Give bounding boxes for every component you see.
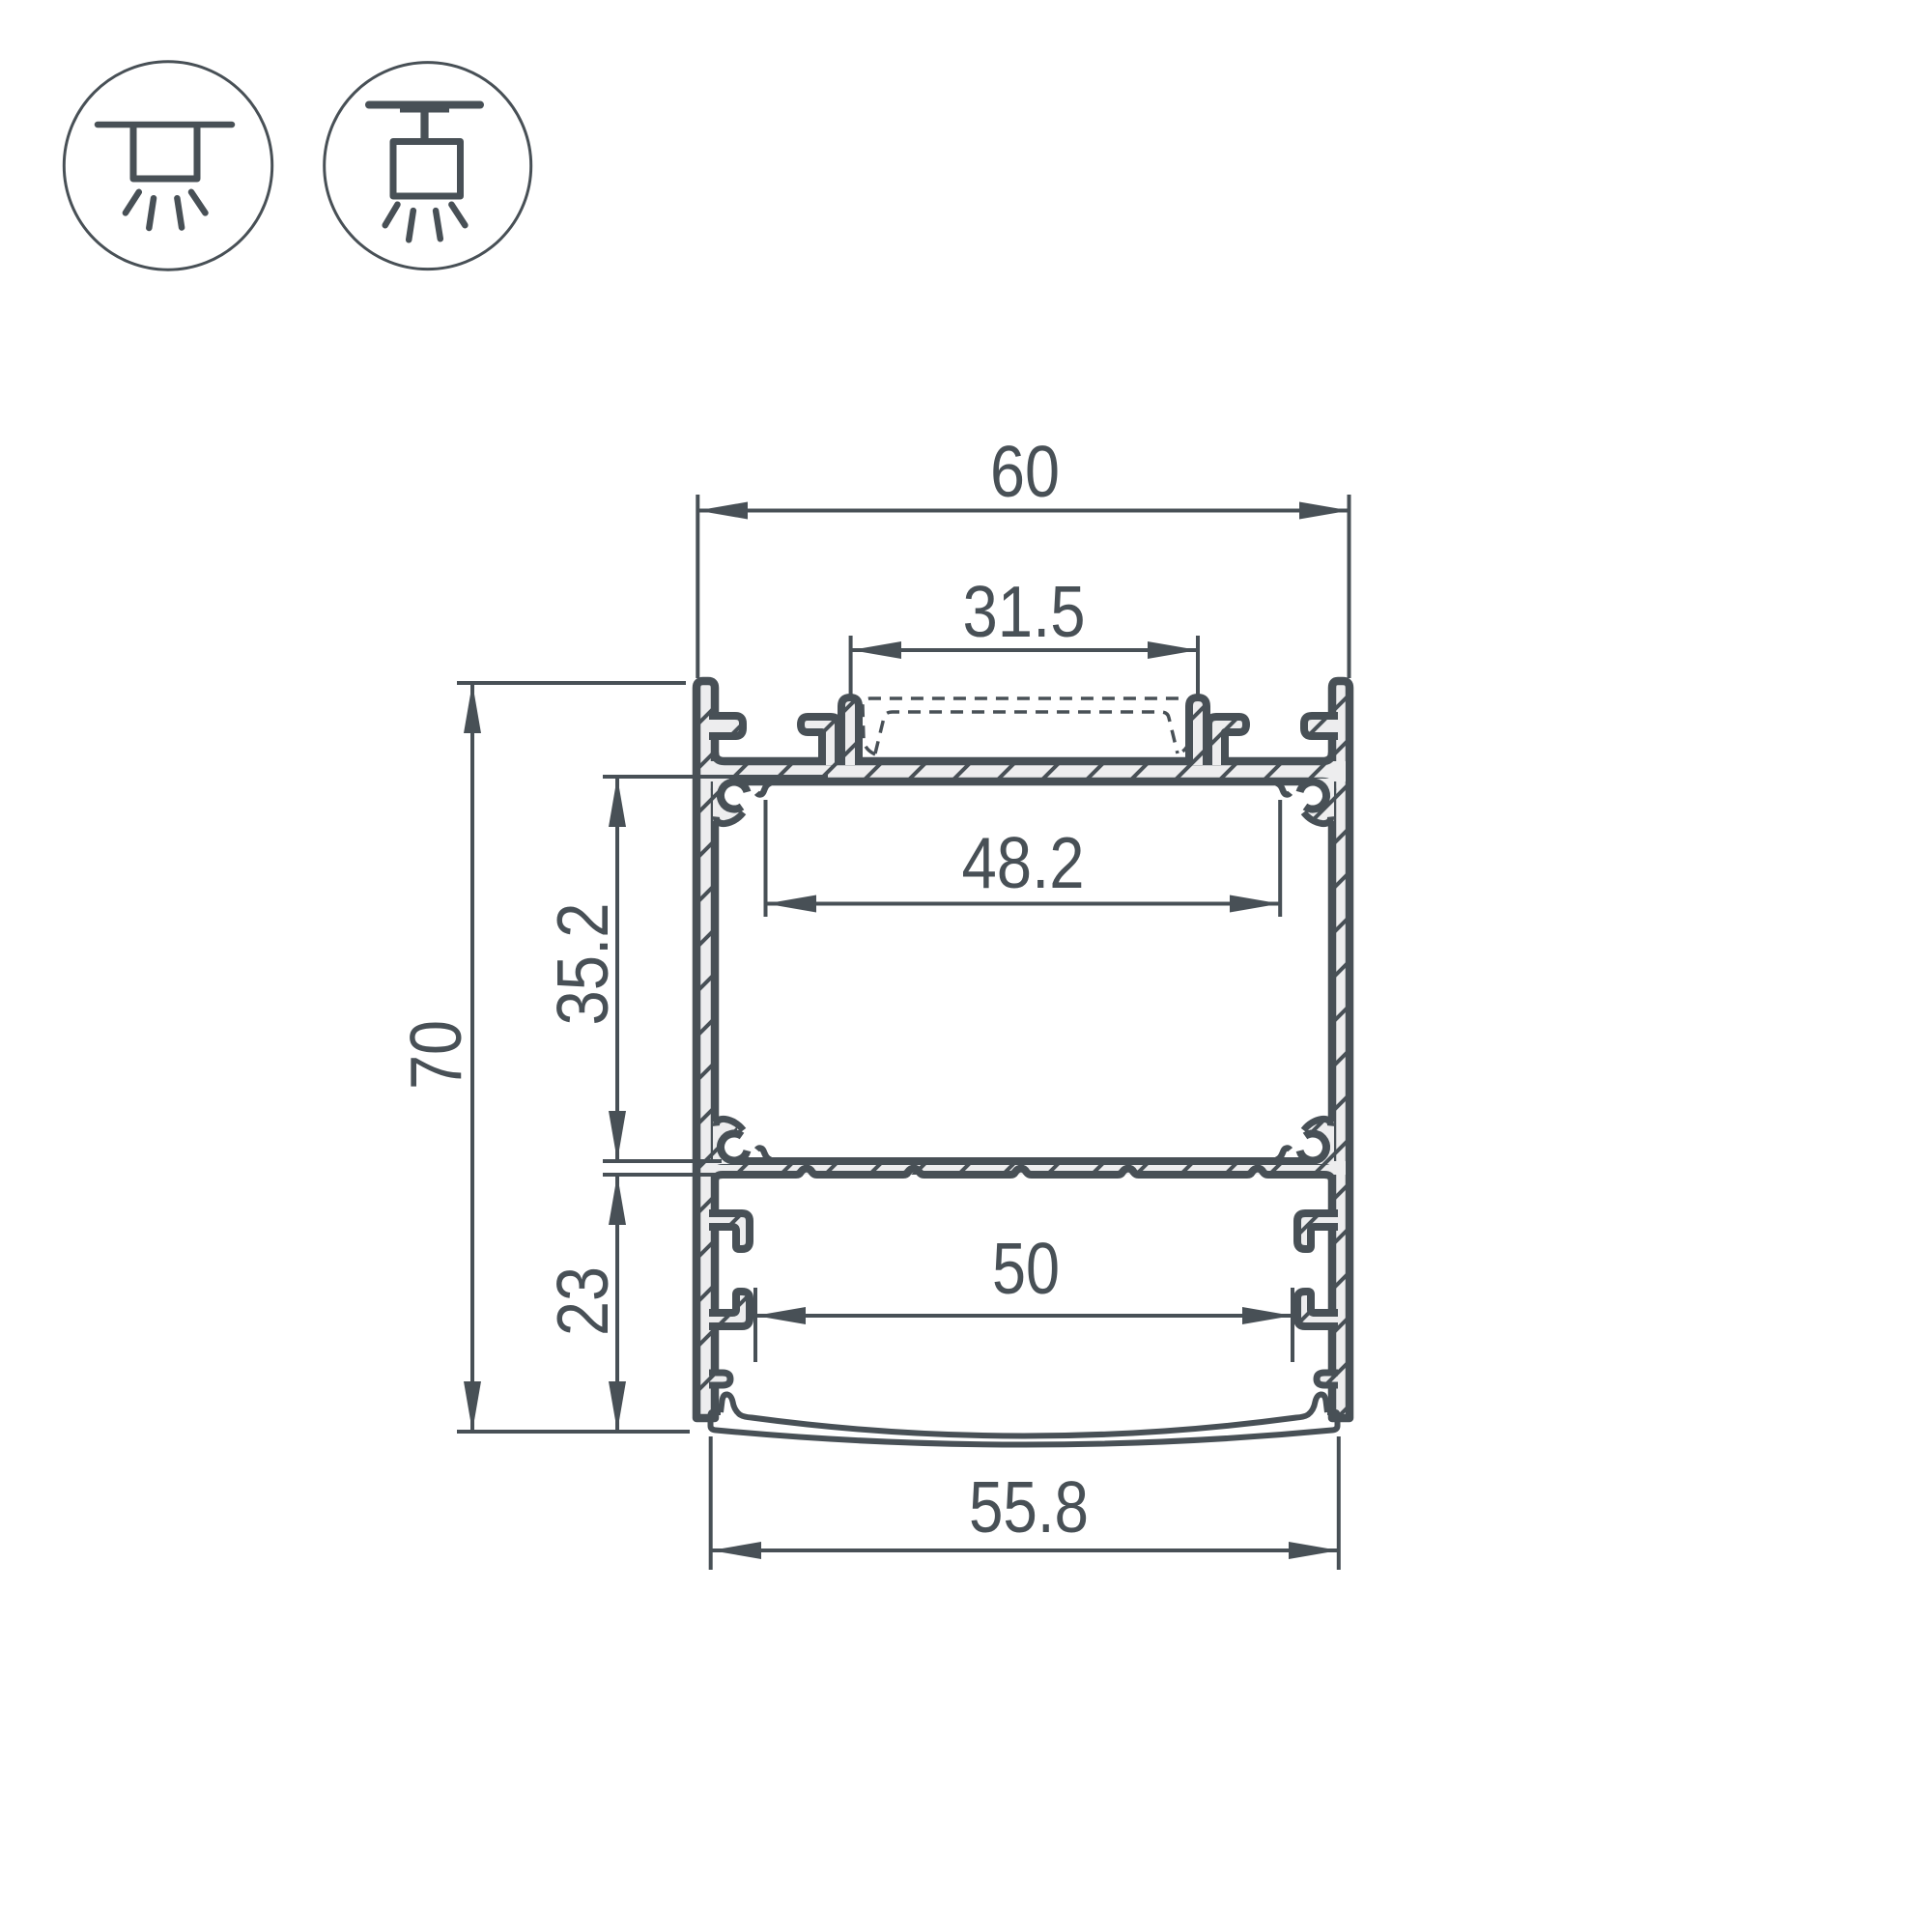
svg-text:55.8: 55.8 xyxy=(969,1466,1089,1548)
svg-text:48.2: 48.2 xyxy=(962,822,1085,903)
svg-text:31.5: 31.5 xyxy=(963,571,1086,652)
svg-text:60: 60 xyxy=(990,431,1060,512)
svg-text:35.2: 35.2 xyxy=(542,903,623,1026)
svg-text:50: 50 xyxy=(992,1228,1060,1309)
svg-text:70: 70 xyxy=(395,1020,476,1090)
svg-text:23: 23 xyxy=(542,1266,623,1336)
